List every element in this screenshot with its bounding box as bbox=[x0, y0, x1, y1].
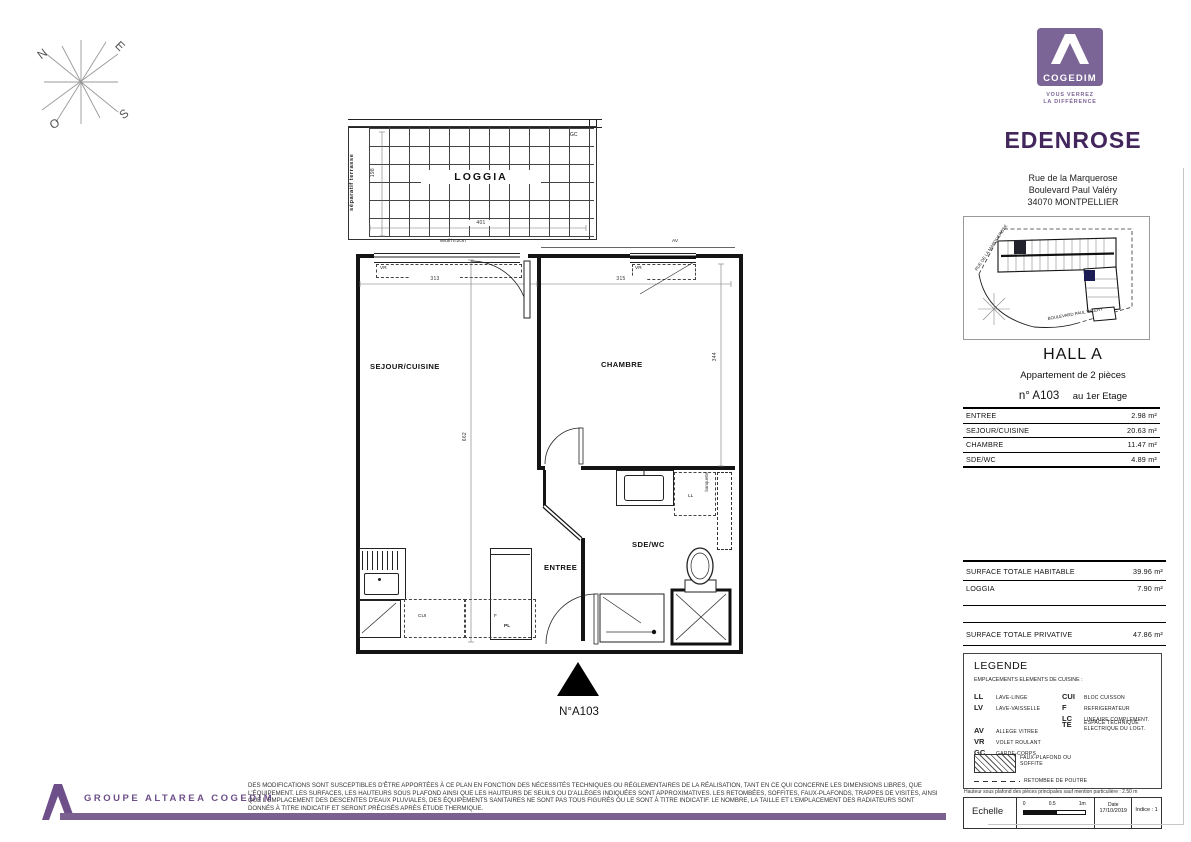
total-privative-label: SURFACE TOTALE PRIVATIVE bbox=[966, 630, 1072, 639]
total-privative-value: 47.86 m² bbox=[1133, 630, 1163, 639]
hall-title: HALL A bbox=[955, 346, 1191, 364]
unit-highlight-2 bbox=[1084, 270, 1095, 281]
legend-dash-label: RETOMBEE DE POUTRE bbox=[1024, 778, 1087, 784]
legend-dash-swatch bbox=[974, 781, 1020, 782]
siteplan-compass-icon bbox=[978, 293, 1010, 325]
area-label: SEJOUR/CUISINE bbox=[966, 426, 1029, 435]
area-label: ENTREE bbox=[966, 411, 996, 420]
legend-label: LAVE-VAISSELLE bbox=[996, 706, 1040, 712]
unit-floor: au 1er Etage bbox=[1073, 391, 1127, 402]
legend-title: LEGENDE bbox=[974, 660, 1028, 672]
door-arc-chambre bbox=[545, 428, 581, 464]
dim-lines bbox=[360, 132, 731, 642]
tagline-line2: LA DIFFÉRENCE bbox=[1020, 99, 1120, 106]
legend-item: LVLAVE-VAISSELLE bbox=[974, 697, 1040, 715]
area-value: 20.63 m² bbox=[1127, 426, 1157, 435]
scale-label: Echelle bbox=[972, 806, 1003, 817]
legend-label: ESPACE TECHNIQUE ELECTRIQUE DU LOGT. bbox=[1084, 720, 1146, 732]
area-value: 11.47 m² bbox=[1128, 440, 1157, 449]
siteplan-map: RUE DE LA MARQUEROSE BOULEVARD PAUL VALÉ… bbox=[964, 217, 1147, 337]
compass-letter-n: N bbox=[35, 46, 50, 62]
shower-drain-icon bbox=[652, 630, 656, 634]
floor-plan: séparatif terrasse LOGGIA GC 401 198 seu… bbox=[338, 106, 750, 746]
area-label: CHAMBRE bbox=[966, 440, 1003, 449]
unit-highlight bbox=[1014, 240, 1026, 254]
legend-abbr: LV bbox=[974, 703, 996, 712]
area-value: 4.89 m² bbox=[1131, 455, 1157, 464]
area-value: 2.98 m² bbox=[1131, 411, 1157, 420]
door-leaf-loggia bbox=[524, 261, 530, 318]
project-address: Rue de la Marquerose Boulevard Paul Valé… bbox=[955, 172, 1191, 208]
floor-plan-sheet: N E S O séparatif terrasse LOGGIA GC 401… bbox=[0, 0, 1191, 842]
compass-star-icon bbox=[42, 40, 118, 124]
date-value: 17/10/2019 bbox=[1095, 808, 1131, 814]
window-swing-line bbox=[640, 262, 694, 294]
page-edge-right bbox=[1183, 168, 1184, 824]
legend-abbr: TE bbox=[1062, 720, 1084, 732]
indice-value: Indice : 1 bbox=[1132, 807, 1161, 813]
legend-hatch-label: FAUX-PLAFOND OU SOFFITE bbox=[1020, 755, 1078, 767]
cogedim-tagline: VOUS VERREZ LA DIFFÉRENCE bbox=[1020, 92, 1120, 107]
legend-hatch-swatch bbox=[974, 754, 1016, 773]
legend-subtitle: EMPLACEMENTS ELEMENTS DE CUISINE : bbox=[974, 677, 1083, 683]
door-arc-loggia bbox=[471, 261, 528, 318]
footer-brand-text: GROUPE ALTAREA COGEDIM bbox=[84, 793, 274, 804]
compass-letter-o: O bbox=[47, 115, 62, 132]
footer-disclaimer: DES MODIFICATIONS SONT SUSCEPTIBLES D'ÊT… bbox=[248, 782, 942, 812]
loggia-area-value: 7.90 m² bbox=[1137, 584, 1163, 593]
siteplan-box: RUE DE LA MARQUEROSE BOULEVARD PAUL VALÉ… bbox=[963, 216, 1150, 340]
entrance-triangle-icon bbox=[557, 662, 599, 696]
total-privative-row: SURFACE TOTALE PRIVATIVE 47.86 m² bbox=[963, 622, 1166, 646]
table-row: SDE/WC 4.89 m² bbox=[963, 453, 1160, 467]
project-title: EDENROSE bbox=[955, 127, 1191, 154]
total-habitable-row: SURFACE TOTALE HABITABLE 39.96 m² bbox=[963, 560, 1166, 581]
kitchen-appliance-diagonal bbox=[362, 603, 396, 633]
scale-tick-0: 0 bbox=[1023, 801, 1026, 807]
unit-number: n° A103 bbox=[1019, 390, 1059, 402]
address-line2: Boulevard Paul Valéry bbox=[955, 184, 1191, 196]
ceiling-note: Hauteur sous plafond des pièces principa… bbox=[964, 789, 1160, 795]
door-leaf-entry bbox=[594, 594, 598, 644]
cogedim-lambda-icon bbox=[1037, 28, 1103, 68]
table-row: ENTREE 2.98 m² bbox=[963, 409, 1160, 424]
page-edge-bottom bbox=[988, 824, 1184, 825]
legend-item: TEESPACE TECHNIQUE ELECTRIQUE DU LOGT. bbox=[1062, 720, 1146, 732]
total-habitable-label: SURFACE TOTALE HABITABLE bbox=[966, 567, 1075, 576]
scale-tick-05: 0.5 bbox=[1049, 801, 1056, 807]
door-sde-angled-inner bbox=[544, 506, 581, 539]
unit-type: Appartement de 2 pièces bbox=[955, 370, 1191, 381]
legend-box: LEGENDE EMPLACEMENTS ELEMENTS DE CUISINE… bbox=[963, 653, 1162, 789]
compass-letter-s: S bbox=[117, 106, 132, 122]
unit-number-row: n° A103 au 1er Etage bbox=[955, 386, 1191, 404]
address-line1: Rue de la Marquerose bbox=[955, 172, 1191, 184]
scale-bar-black bbox=[1023, 810, 1056, 815]
unit-ref-label: N°A103 bbox=[534, 706, 624, 718]
cogedim-wordmark: COGEDIM bbox=[1037, 73, 1103, 84]
door-leaf-chambre bbox=[579, 428, 583, 464]
compass-rose: N E S O bbox=[28, 32, 140, 136]
door-arc-entry bbox=[546, 594, 596, 644]
compass-letter-e: E bbox=[112, 38, 127, 54]
footer-purple-bar bbox=[60, 813, 946, 820]
area-label: SDE/WC bbox=[966, 455, 996, 464]
shower-tray-diagonal bbox=[603, 597, 641, 623]
loggia-area-row: LOGGIA 7.90 m² bbox=[963, 580, 1166, 606]
plan-drawing bbox=[338, 106, 750, 746]
scale-bar-white bbox=[1056, 810, 1086, 815]
scale-tick-1m: 1m bbox=[1079, 801, 1086, 807]
address-line3: 34070 MONTPELLIER bbox=[955, 196, 1191, 208]
loggia-area-label: LOGGIA bbox=[966, 584, 995, 593]
table-row: SEJOUR/CUISINE 20.63 m² bbox=[963, 424, 1160, 439]
area-table: ENTREE 2.98 m² SEJOUR/CUISINE 20.63 m² C… bbox=[963, 407, 1160, 468]
cogedim-logo: COGEDIM bbox=[1037, 28, 1103, 86]
total-habitable-value: 39.96 m² bbox=[1133, 567, 1163, 576]
table-row: CHAMBRE 11.47 m² bbox=[963, 438, 1160, 453]
